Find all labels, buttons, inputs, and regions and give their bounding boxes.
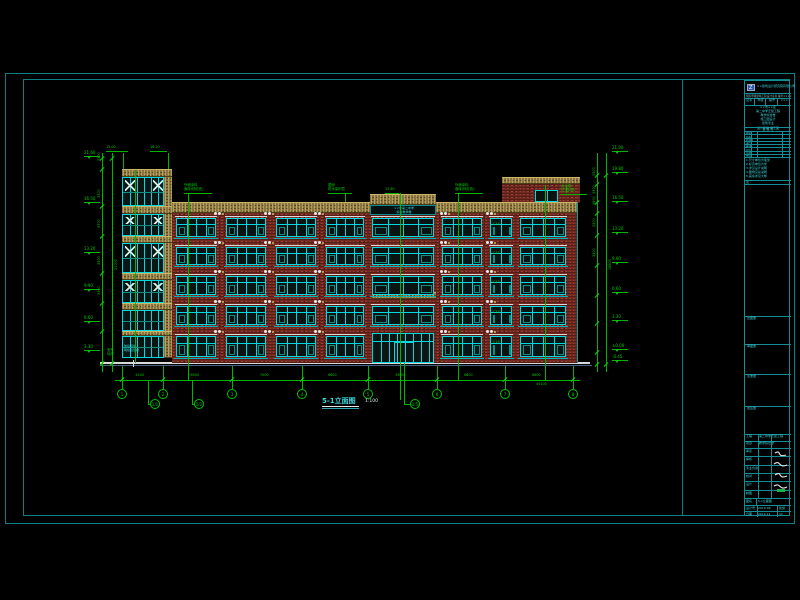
elevation-value: 9.90 bbox=[84, 284, 93, 288]
window-sill bbox=[324, 358, 366, 359]
window-sill bbox=[370, 238, 436, 239]
window bbox=[176, 276, 216, 295]
window-casement bbox=[493, 345, 495, 355]
window-mullion bbox=[196, 337, 197, 356]
ac-unit-symbol bbox=[444, 270, 447, 273]
title-block-line bbox=[756, 498, 757, 505]
window bbox=[176, 336, 216, 357]
window-mullion bbox=[403, 219, 404, 236]
window-sill bbox=[224, 326, 268, 327]
entrance-mullion bbox=[421, 334, 422, 362]
window-casement bbox=[493, 255, 495, 263]
dimension-overall-text: 45100 bbox=[536, 383, 547, 387]
window bbox=[490, 247, 512, 265]
window-mullion bbox=[306, 307, 307, 324]
tower-spandrel-band bbox=[122, 273, 172, 280]
ac-unit-symbol bbox=[214, 212, 217, 215]
window-mullion bbox=[388, 219, 389, 236]
window bbox=[176, 306, 216, 325]
window-sill bbox=[274, 326, 318, 327]
grid-bubble: 5 bbox=[363, 389, 373, 399]
elevation-value: 21.60 bbox=[84, 151, 95, 155]
window-casement bbox=[357, 285, 363, 293]
window-casement bbox=[329, 227, 335, 235]
window-sill bbox=[440, 358, 484, 359]
section-label: 审图章 bbox=[747, 345, 756, 348]
ac-unit-symbol-dot bbox=[272, 271, 274, 273]
window-casement bbox=[523, 255, 531, 263]
window-casement bbox=[445, 315, 451, 323]
name-row-label: 图名 bbox=[746, 500, 752, 503]
callout-text: 压顶详图 bbox=[561, 189, 575, 193]
window-mullion bbox=[246, 219, 247, 236]
window-lintel bbox=[225, 245, 267, 246]
window-casement bbox=[523, 227, 531, 235]
title-block-line bbox=[757, 505, 758, 517]
window bbox=[326, 336, 364, 357]
window-casement bbox=[375, 227, 387, 235]
meta-cell: 12 bbox=[779, 513, 783, 516]
window-mullion bbox=[403, 307, 404, 324]
window-casement bbox=[557, 255, 565, 263]
callout-text: 面砖(棕红色) bbox=[455, 188, 475, 192]
window-lintel bbox=[519, 245, 567, 246]
ac-unit-symbol bbox=[440, 241, 443, 244]
roof-penthouse-center bbox=[370, 194, 436, 205]
dimension-text: 7000 bbox=[260, 374, 269, 378]
callout-underline bbox=[455, 193, 483, 194]
callout-underline bbox=[561, 194, 587, 195]
project-line: 建筑专业 bbox=[747, 122, 789, 125]
window-mullion bbox=[543, 248, 544, 264]
elevation-value: -0.45 bbox=[612, 355, 622, 359]
ac-unit-symbol bbox=[490, 241, 493, 244]
window-mullion bbox=[246, 277, 247, 294]
window-casement bbox=[279, 227, 285, 235]
window-sill bbox=[324, 266, 366, 267]
grid-bubble: 2 bbox=[158, 389, 168, 399]
window-mullion bbox=[388, 248, 389, 264]
window-sill bbox=[440, 238, 484, 239]
grid-bubble: 7 bbox=[500, 389, 510, 399]
window bbox=[276, 336, 316, 357]
dimension-text: 3300 bbox=[98, 256, 102, 265]
grid-line bbox=[135, 170, 136, 363]
ac-unit-symbol bbox=[268, 212, 271, 215]
window-lintel bbox=[225, 216, 267, 217]
window-casement bbox=[229, 227, 235, 235]
window-sill bbox=[274, 358, 318, 359]
window bbox=[490, 306, 512, 325]
elevation-value: 13.20 bbox=[84, 247, 95, 251]
window-mullion bbox=[296, 248, 297, 264]
window-casement bbox=[179, 255, 185, 263]
window-mullion bbox=[354, 337, 355, 356]
logo-text: ××建筑设计研究院有限公司 bbox=[757, 85, 795, 88]
window-mullion bbox=[354, 219, 355, 236]
grid-bubble-dropped: 1/1 bbox=[150, 399, 160, 409]
window-casement bbox=[509, 227, 511, 235]
dimension-text: 3300 bbox=[98, 219, 102, 228]
window-casement bbox=[357, 255, 363, 263]
window-lintel bbox=[275, 274, 317, 275]
window bbox=[226, 276, 266, 295]
ac-unit-symbol bbox=[318, 300, 321, 303]
window-casement bbox=[279, 345, 285, 355]
entrance-mullion bbox=[429, 334, 430, 362]
window-casement bbox=[357, 345, 363, 355]
role-label: 制图 bbox=[746, 492, 752, 495]
penthouse-window-mullion bbox=[547, 191, 548, 201]
ac-unit-symbol-dot bbox=[448, 301, 450, 303]
callout-text: 16.20 bbox=[150, 146, 160, 150]
role-label: 专业负责 bbox=[746, 467, 758, 470]
window-casement bbox=[329, 255, 335, 263]
tower-curtainwall-strip bbox=[122, 177, 164, 206]
ac-unit-symbol bbox=[214, 241, 217, 244]
window-casement bbox=[375, 255, 387, 263]
grid-bubble-dropped: 1/5 bbox=[410, 399, 420, 409]
ac-unit-symbol bbox=[264, 270, 267, 273]
ac-unit-symbol bbox=[268, 300, 271, 303]
window-casement bbox=[329, 285, 335, 293]
window-lintel bbox=[175, 245, 217, 246]
dimension-text: 6800 bbox=[532, 374, 541, 378]
window-lintel bbox=[489, 216, 513, 217]
ac-unit-symbol bbox=[444, 300, 447, 303]
ac-unit-symbol bbox=[444, 330, 447, 333]
window-casement bbox=[375, 315, 387, 323]
grid-bubble: 3 bbox=[227, 389, 237, 399]
window-lintel bbox=[175, 304, 217, 305]
window-mullion bbox=[543, 307, 544, 324]
title-underline-thick bbox=[322, 406, 359, 407]
ac-unit-symbol bbox=[268, 330, 271, 333]
grid-line bbox=[188, 196, 189, 380]
window-mullion bbox=[354, 307, 355, 324]
callout-leader bbox=[123, 153, 124, 169]
ground-subline bbox=[100, 365, 592, 366]
window-mullion bbox=[418, 248, 419, 264]
ac-unit-symbol-dot bbox=[322, 301, 324, 303]
curtainwall-transom bbox=[123, 258, 163, 259]
entrance-glazing bbox=[372, 333, 434, 363]
window-casement bbox=[258, 255, 264, 263]
operable-vent-xmark bbox=[153, 246, 163, 257]
window-casement bbox=[421, 227, 433, 235]
dimension-text: 3300 bbox=[98, 189, 102, 198]
ac-unit-symbol bbox=[264, 300, 267, 303]
facade-right-edge bbox=[577, 202, 578, 363]
window-lintel bbox=[441, 245, 483, 246]
window-mullion bbox=[501, 307, 502, 324]
window-mullion bbox=[453, 248, 454, 264]
ac-unit-symbol-dot bbox=[494, 331, 496, 333]
window-mullion bbox=[532, 219, 533, 236]
window-sill bbox=[370, 326, 436, 327]
window-mullion bbox=[287, 337, 288, 356]
window-mullion bbox=[196, 277, 197, 294]
ac-unit-symbol-dot bbox=[448, 242, 450, 244]
elevation-value: ±0.00 bbox=[612, 344, 624, 348]
window-mullion bbox=[462, 277, 463, 294]
window-casement bbox=[258, 345, 264, 355]
title-block-line bbox=[777, 505, 778, 517]
ac-unit-symbol bbox=[490, 212, 493, 215]
window-mullion bbox=[336, 219, 337, 236]
ac-unit-symbol bbox=[214, 270, 217, 273]
window-mullion bbox=[543, 337, 544, 356]
callout-text: 面砖(棕红色) bbox=[184, 188, 204, 192]
window-casement bbox=[258, 227, 264, 235]
window-mullion bbox=[237, 248, 238, 264]
ac-unit-symbol-dot bbox=[272, 331, 274, 333]
window-mullion bbox=[554, 219, 555, 236]
window-casement bbox=[329, 345, 335, 355]
drawing-title-text: 5-1立面图 bbox=[322, 396, 356, 406]
window-casement bbox=[208, 315, 214, 323]
curtainwall-transom bbox=[123, 225, 163, 226]
window-casement bbox=[509, 255, 511, 263]
window-casement bbox=[557, 285, 565, 293]
window-lintel bbox=[489, 245, 513, 246]
building-sign-text: 综合教学楼 bbox=[374, 211, 434, 214]
window-mullion bbox=[345, 248, 346, 264]
window bbox=[326, 247, 364, 265]
ac-unit-symbol-dot bbox=[448, 331, 450, 333]
elevation-value: 6.60 bbox=[612, 287, 621, 291]
window-casement bbox=[229, 285, 235, 293]
window-mullion bbox=[196, 248, 197, 264]
window-mullion bbox=[237, 337, 238, 356]
window bbox=[442, 306, 482, 325]
window-casement bbox=[357, 315, 363, 323]
window bbox=[326, 276, 364, 295]
window-mullion bbox=[246, 307, 247, 324]
elevation-dim-chain bbox=[112, 153, 113, 372]
ac-unit-symbol-dot bbox=[222, 301, 224, 303]
window-sill bbox=[488, 266, 514, 267]
window-lintel bbox=[175, 216, 217, 217]
window-mullion bbox=[206, 277, 207, 294]
elevation-marker-triangle bbox=[615, 151, 619, 154]
tower-spandrel-band bbox=[122, 236, 172, 243]
window-mullion bbox=[453, 337, 454, 356]
window-mullion bbox=[287, 307, 288, 324]
window-casement bbox=[179, 345, 185, 355]
window-casement bbox=[557, 345, 565, 355]
ac-unit-symbol bbox=[264, 241, 267, 244]
window-code-label: C15 bbox=[493, 281, 500, 285]
dimension-text: 3300 bbox=[593, 167, 597, 176]
window-lintel bbox=[325, 245, 365, 246]
window-lintel bbox=[325, 274, 365, 275]
window bbox=[442, 276, 482, 295]
window-lintel bbox=[275, 334, 317, 335]
ac-unit-symbol bbox=[440, 300, 443, 303]
tower-spandrel-band bbox=[122, 169, 172, 177]
window-lintel bbox=[519, 216, 567, 217]
window-sill bbox=[324, 326, 366, 327]
window-sill bbox=[324, 296, 366, 297]
window-mullion bbox=[256, 277, 257, 294]
window-mullion bbox=[246, 337, 247, 356]
window bbox=[276, 247, 316, 265]
elevation-marker-triangle bbox=[615, 320, 619, 323]
window-casement bbox=[208, 345, 214, 355]
title-block-line bbox=[754, 98, 755, 105]
ac-unit-symbol bbox=[440, 212, 443, 215]
window-sill bbox=[518, 296, 568, 297]
elevation-marker-triangle bbox=[615, 349, 619, 352]
window-mullion bbox=[256, 219, 257, 236]
cert-cell: ××× bbox=[781, 99, 789, 102]
curtainwall-transom bbox=[123, 292, 163, 293]
window-mullion bbox=[462, 219, 463, 236]
role-label: 设计 bbox=[746, 483, 752, 486]
window-casement bbox=[308, 345, 314, 355]
callout-underline bbox=[106, 151, 128, 152]
window-mullion bbox=[403, 277, 404, 294]
window-lintel bbox=[225, 304, 267, 305]
window-casement bbox=[445, 227, 451, 235]
window-casement bbox=[279, 315, 285, 323]
window-mullion bbox=[501, 337, 502, 356]
window-mullion bbox=[306, 219, 307, 236]
window-lintel bbox=[175, 334, 217, 335]
callout-leader bbox=[566, 185, 567, 193]
window-mullion bbox=[287, 277, 288, 294]
ac-unit-symbol-dot bbox=[322, 213, 324, 215]
drawing-scale: 1:100 bbox=[365, 399, 378, 404]
title-block-line bbox=[782, 131, 783, 157]
meta-cell: 建施 bbox=[779, 507, 785, 510]
ac-unit-symbol bbox=[490, 330, 493, 333]
elevation-value: 3.30 bbox=[84, 345, 93, 349]
tower-pilaster bbox=[164, 169, 172, 358]
ground-tick bbox=[133, 360, 134, 367]
ac-unit-symbol bbox=[444, 212, 447, 215]
window-mullion bbox=[418, 277, 419, 294]
callout-underline bbox=[385, 193, 399, 194]
tower-curtainwall-strip bbox=[122, 243, 164, 273]
window-casement bbox=[179, 285, 185, 293]
window-sill bbox=[488, 238, 514, 239]
window-casement bbox=[308, 227, 314, 235]
window-lintel bbox=[325, 304, 365, 305]
operable-vent-xmark bbox=[153, 180, 163, 191]
window bbox=[372, 276, 434, 295]
window bbox=[372, 247, 434, 265]
window-casement bbox=[474, 285, 480, 293]
window-mullion bbox=[196, 219, 197, 236]
elevation-value: 9.90 bbox=[612, 257, 621, 261]
cert-cell: 编号 bbox=[769, 99, 775, 102]
ac-unit-symbol-dot bbox=[448, 213, 450, 215]
window-sill bbox=[488, 358, 514, 359]
window-casement bbox=[308, 255, 314, 263]
ac-unit-symbol bbox=[218, 330, 221, 333]
window-mullion bbox=[462, 337, 463, 356]
window-mullion bbox=[532, 277, 533, 294]
dimension-text: 4100 bbox=[136, 374, 145, 378]
ac-unit-symbol-dot bbox=[322, 242, 324, 244]
grid-bubble-dropped: 1/2 bbox=[194, 399, 204, 409]
ac-unit-symbol bbox=[314, 212, 317, 215]
section-label: 注册章 bbox=[747, 375, 756, 378]
ac-unit-symbol bbox=[486, 300, 489, 303]
ac-unit-symbol bbox=[490, 270, 493, 273]
window-sill bbox=[518, 358, 568, 359]
entrance-mullion bbox=[389, 334, 390, 362]
window-lintel bbox=[489, 304, 513, 305]
title-block-line bbox=[765, 98, 766, 105]
window-sill bbox=[370, 266, 436, 267]
window-casement bbox=[229, 345, 235, 355]
window-mullion bbox=[196, 307, 197, 324]
title-block-line bbox=[757, 131, 758, 157]
window-casement bbox=[474, 227, 480, 235]
role-label: 审定 bbox=[746, 450, 752, 453]
window-casement bbox=[357, 227, 363, 235]
elevation-value: 6.60 bbox=[84, 316, 93, 320]
window-mullion bbox=[345, 337, 346, 356]
window-sill bbox=[518, 266, 568, 267]
window-mullion bbox=[256, 248, 257, 264]
tower-curtainwall-strip bbox=[122, 280, 164, 303]
window-lintel bbox=[519, 334, 567, 335]
ac-unit-symbol-dot bbox=[272, 213, 274, 215]
window-mullion bbox=[472, 277, 473, 294]
window-sill bbox=[224, 296, 268, 297]
window bbox=[176, 247, 216, 265]
ac-unit-symbol bbox=[264, 330, 267, 333]
dimension-text: 6800 bbox=[464, 374, 473, 378]
window-sill bbox=[518, 238, 568, 239]
ac-unit-symbol bbox=[214, 300, 217, 303]
window-mullion bbox=[388, 307, 389, 324]
callout-leader bbox=[345, 193, 346, 202]
ac-unit-symbol-dot bbox=[322, 271, 324, 273]
ac-unit-symbol bbox=[218, 270, 221, 273]
window-mullion bbox=[453, 277, 454, 294]
window-sill bbox=[440, 326, 484, 327]
window-sill bbox=[488, 326, 514, 327]
cert-cell: 证书 bbox=[746, 99, 752, 102]
window-casement bbox=[557, 227, 565, 235]
title-block-line bbox=[745, 184, 791, 185]
site-ground-label: 地坪 bbox=[107, 353, 114, 357]
window-mullion bbox=[501, 219, 502, 236]
window-mullion bbox=[472, 307, 473, 324]
grid-line bbox=[400, 196, 401, 400]
ac-unit-symbol-dot bbox=[494, 242, 496, 244]
window-sill bbox=[224, 238, 268, 239]
dimension-text: 6900 bbox=[191, 374, 200, 378]
ac-unit-symbol bbox=[440, 270, 443, 273]
window-casement bbox=[493, 285, 495, 293]
window-casement bbox=[523, 315, 531, 323]
window-lintel bbox=[441, 304, 483, 305]
operable-vent-xmark bbox=[125, 283, 135, 291]
window-casement bbox=[279, 255, 285, 263]
elevation-marker-triangle bbox=[87, 202, 91, 205]
grid-bubble: 1 bbox=[117, 389, 127, 399]
ac-unit-symbol bbox=[218, 300, 221, 303]
window-sill bbox=[274, 296, 318, 297]
window-casement bbox=[523, 345, 531, 355]
window-sill bbox=[440, 266, 484, 267]
